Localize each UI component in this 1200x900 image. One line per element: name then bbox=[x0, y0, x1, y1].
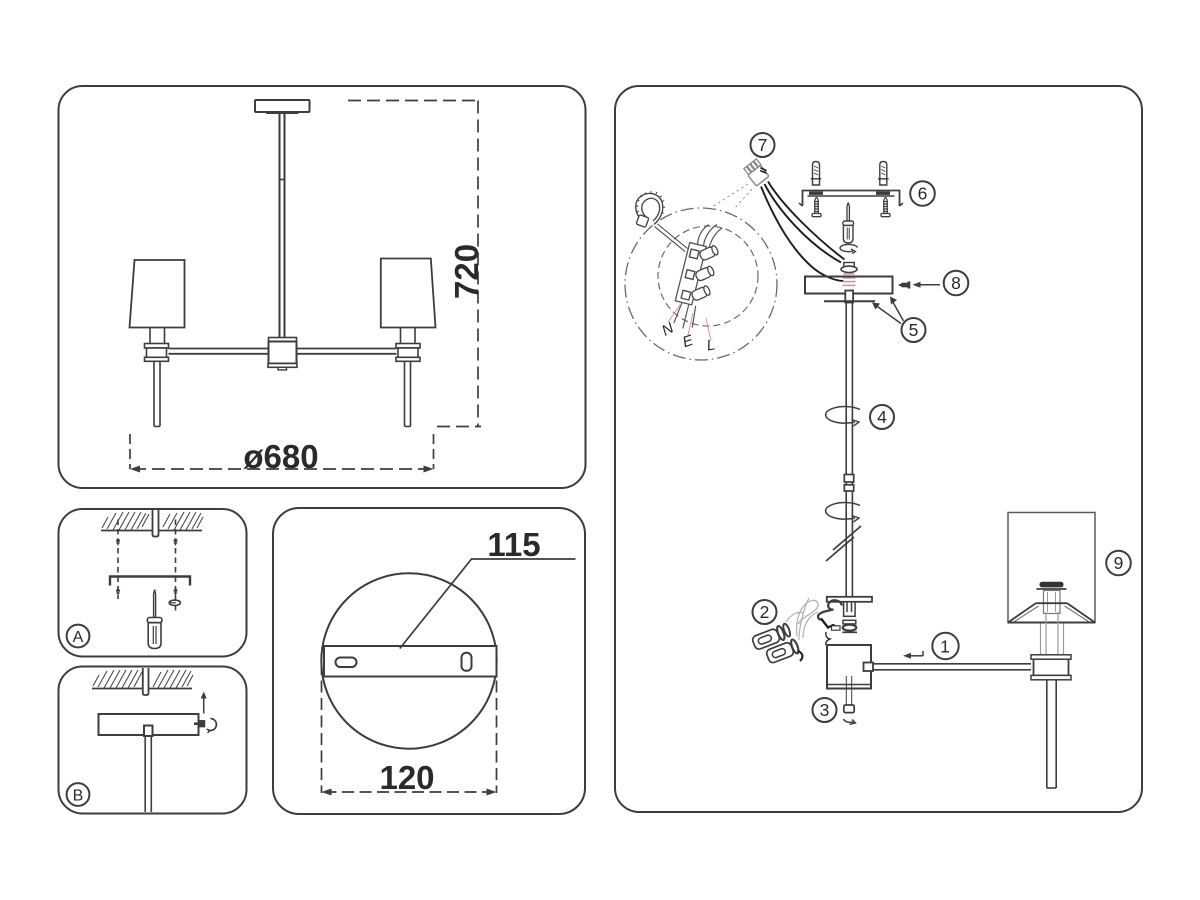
svg-text:8: 8 bbox=[951, 273, 961, 293]
svg-text:115: 115 bbox=[487, 526, 540, 563]
svg-text:ø680: ø680 bbox=[243, 438, 318, 475]
svg-text:5: 5 bbox=[909, 320, 919, 340]
svg-text:7: 7 bbox=[758, 135, 768, 155]
svg-text:2: 2 bbox=[760, 602, 770, 622]
svg-text:6: 6 bbox=[918, 184, 928, 204]
svg-text:1: 1 bbox=[940, 637, 950, 657]
svg-text:120: 120 bbox=[379, 759, 434, 796]
svg-text:A: A bbox=[73, 629, 84, 646]
svg-text:720: 720 bbox=[448, 244, 485, 299]
svg-text:9: 9 bbox=[1114, 553, 1124, 573]
svg-text:B: B bbox=[73, 788, 84, 805]
svg-text:3: 3 bbox=[820, 700, 830, 720]
svg-text:4: 4 bbox=[877, 407, 887, 427]
